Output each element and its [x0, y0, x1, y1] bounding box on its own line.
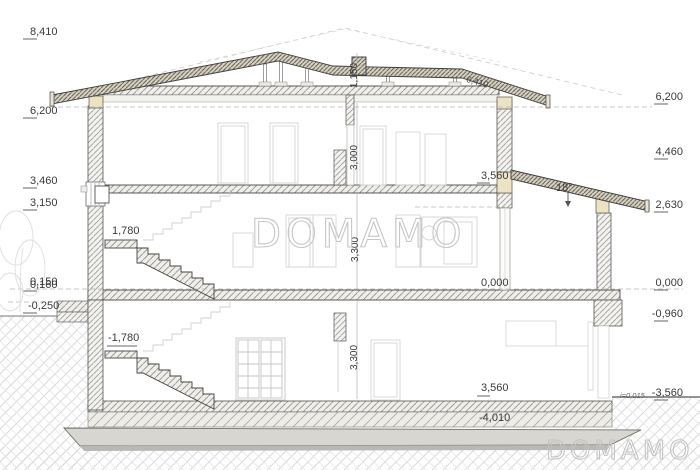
- elevation-label: 3,560: [481, 171, 509, 182]
- dimension-label: 3,560: [481, 383, 509, 394]
- basement-floor-slab: [88, 401, 612, 427]
- elevation-label: 0,160: [30, 280, 58, 291]
- elevation-label: 6,200: [641, 92, 683, 103]
- level-dashed-lines: [8, 107, 683, 302]
- elevation-label: 8,410: [30, 27, 58, 38]
- attic-slab: [103, 86, 499, 102]
- stair-basement-flight: [105, 351, 214, 409]
- slope-angle-label: 18°: [556, 183, 573, 194]
- second-floor-slab: [103, 185, 497, 193]
- elevation-label: -4,010: [479, 413, 510, 424]
- elevation-label: 0,000: [481, 278, 509, 289]
- right-first-floor-wall: [594, 213, 622, 398]
- background-openings: [218, 123, 593, 400]
- watermark: DOMAMO: [546, 436, 694, 466]
- elevation-label: -3,560: [641, 388, 683, 399]
- architectural-section: 8,410 6,200 3,460 3,150 0,150 0,160 -0,2…: [0, 0, 700, 470]
- elevation-label: 2,630: [641, 200, 683, 211]
- elevation-label: 3,460: [30, 176, 58, 187]
- elevation-label: 1,780: [112, 226, 140, 237]
- elevation-label: 4,460: [641, 147, 683, 158]
- left-terrace: [57, 301, 88, 322]
- elevation-label: -1,780: [108, 333, 139, 344]
- elevation-label: 6,200: [30, 106, 58, 117]
- dimension-label: 1,150: [350, 63, 360, 88]
- stair-background-flights: [143, 190, 230, 351]
- dimension-label: 3,000: [350, 145, 360, 170]
- elevation-label: 0,000: [641, 278, 683, 289]
- tree-sketch: [0, 211, 45, 312]
- elevation-label: -0,960: [641, 309, 683, 320]
- elevation-label: 3,150: [30, 198, 58, 209]
- slope-ratio-label: i=0,015: [620, 390, 645, 401]
- porch-roof: [511, 170, 649, 212]
- watermark: DOMAMO: [251, 212, 466, 257]
- first-floor-slab: [88, 290, 620, 300]
- elevation-label: -0,250: [28, 301, 59, 312]
- right-upper-wall: [497, 100, 512, 290]
- dimension-label: 3,300: [350, 345, 360, 370]
